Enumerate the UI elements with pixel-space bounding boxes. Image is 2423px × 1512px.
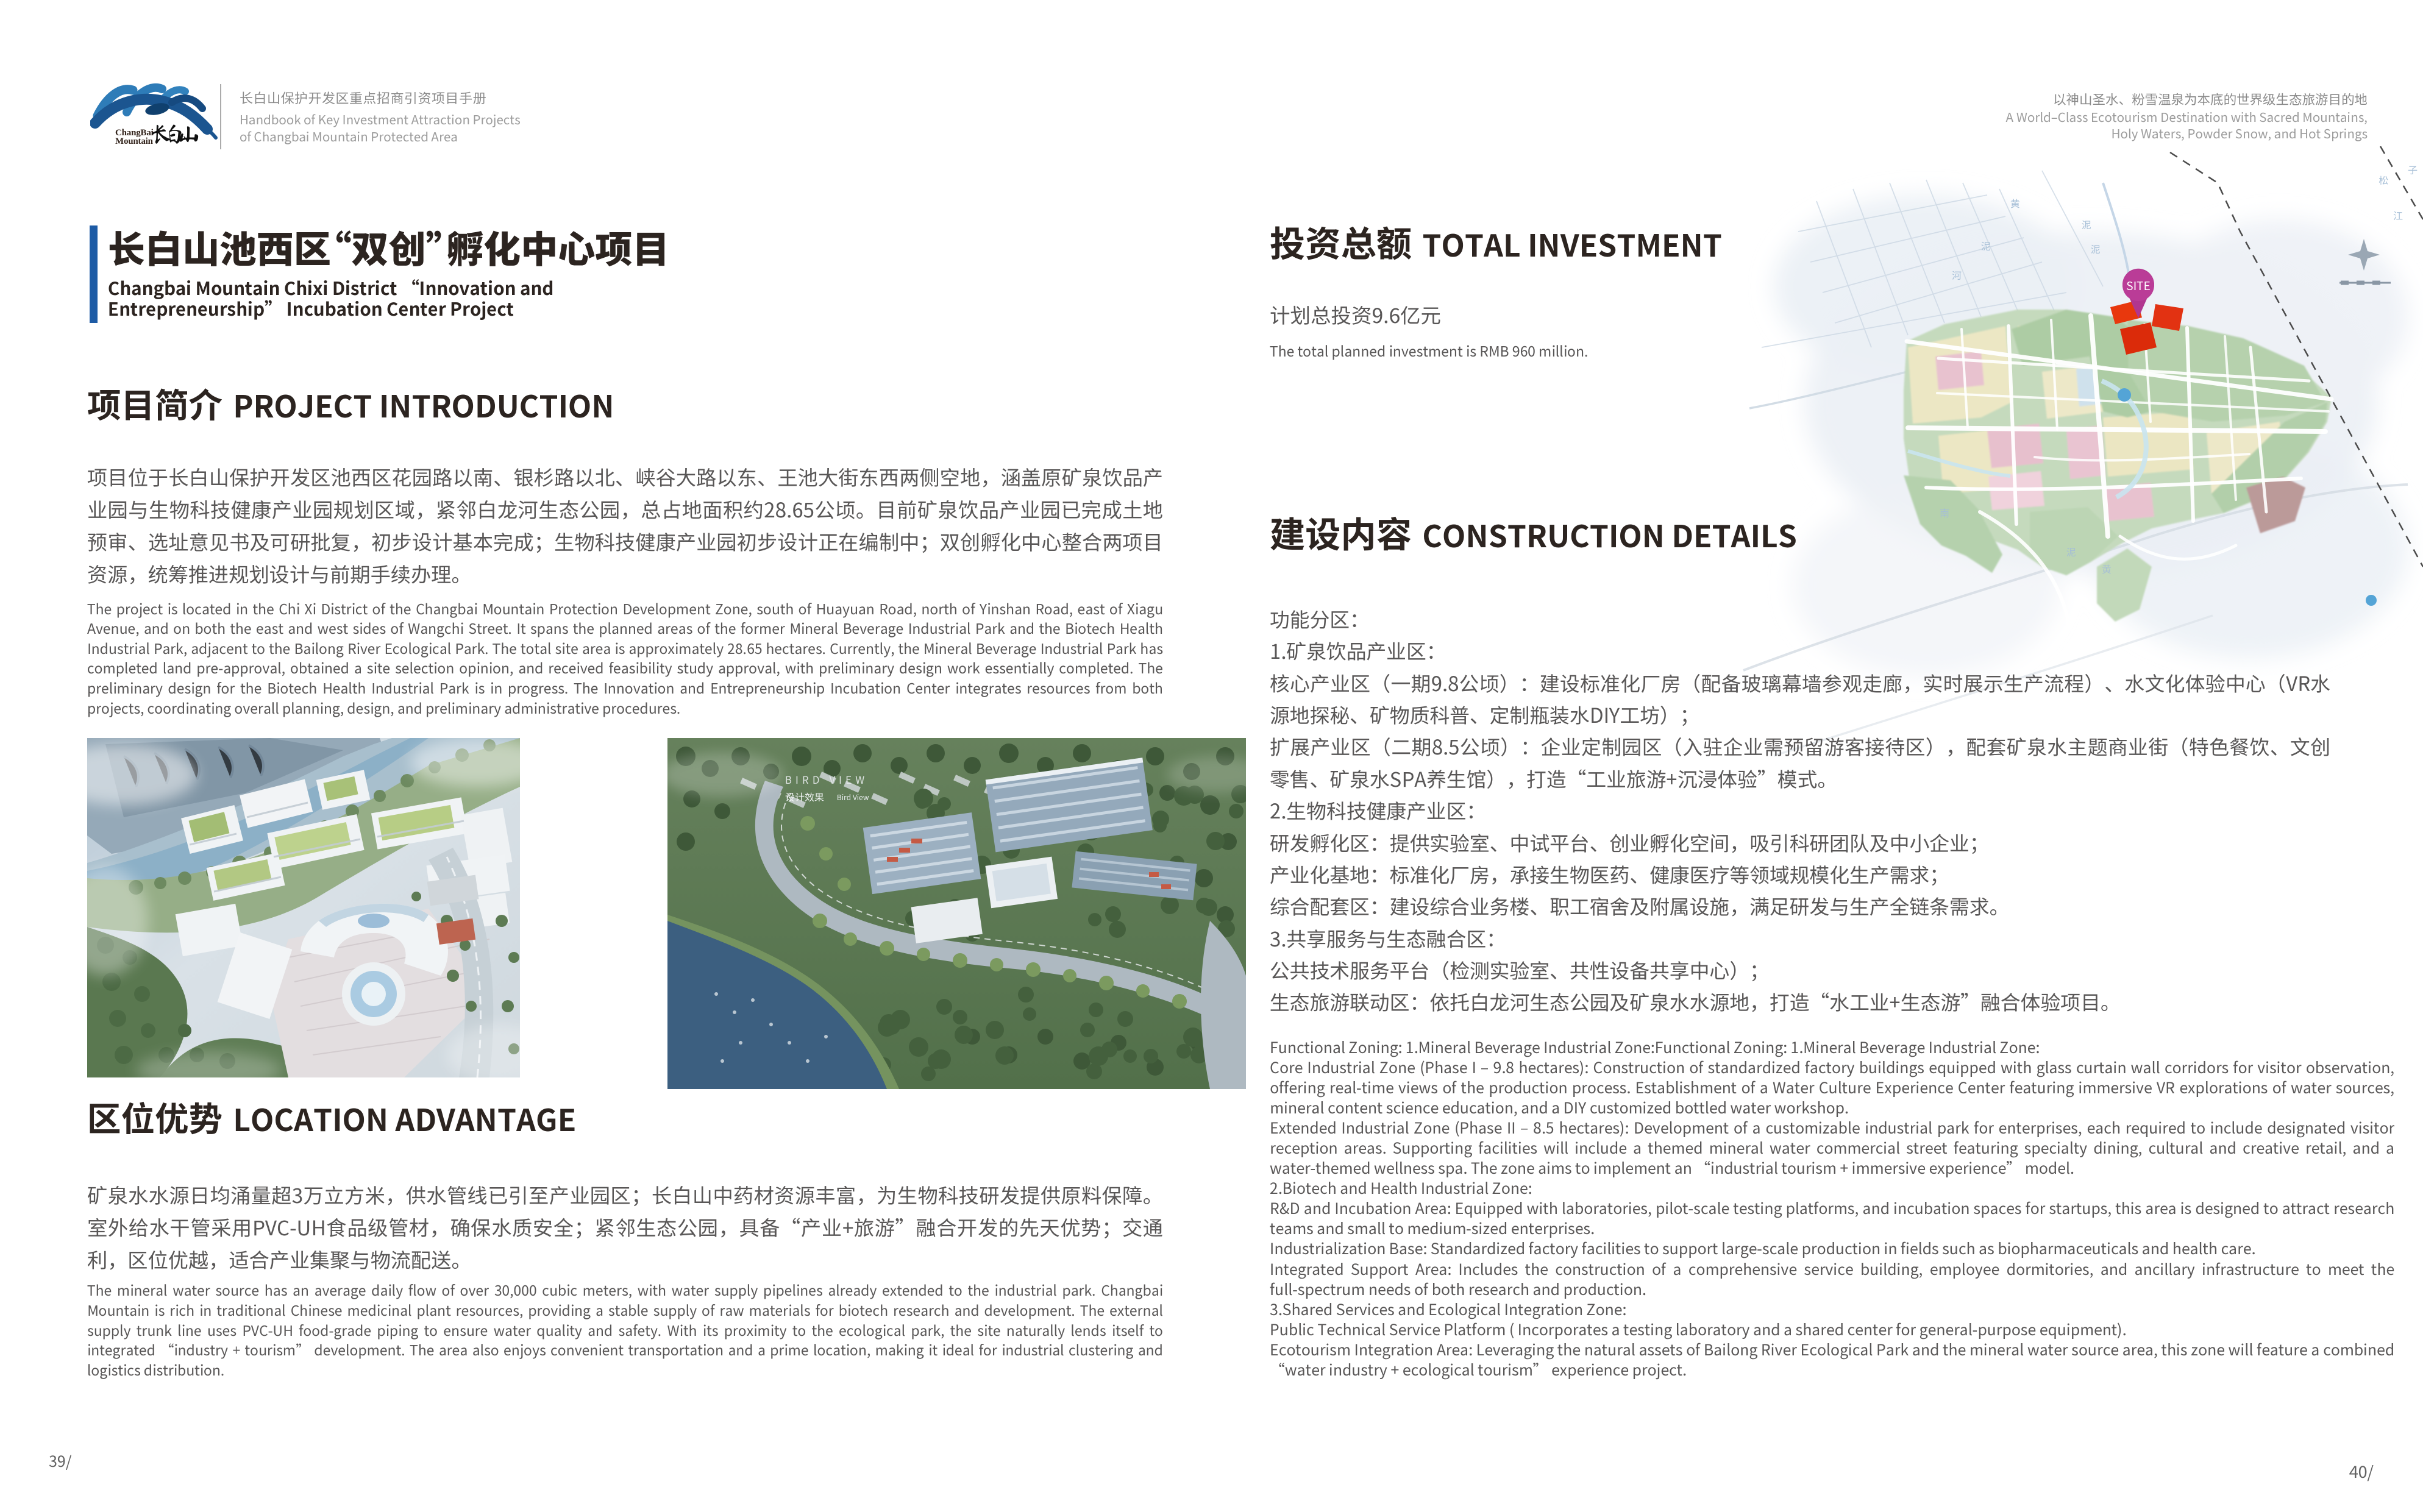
svg-text:SITE: SITE bbox=[2126, 277, 2150, 294]
svg-text:子: 子 bbox=[2408, 162, 2418, 177]
svg-text:泥: 泥 bbox=[2082, 217, 2091, 232]
svg-text:南: 南 bbox=[1940, 505, 1949, 520]
svg-text:泥: 泥 bbox=[2066, 544, 2076, 559]
svg-text:BIRD VIEW: BIRD VIEW bbox=[785, 772, 868, 787]
svg-text:江: 江 bbox=[2393, 208, 2403, 222]
svg-text:泥: 泥 bbox=[2091, 241, 2101, 256]
svg-text:Bird View: Bird View bbox=[837, 792, 869, 803]
svg-text:黄: 黄 bbox=[2010, 196, 2020, 210]
svg-text:黄: 黄 bbox=[2102, 561, 2112, 576]
svg-text:设计效果: 设计效果 bbox=[785, 789, 824, 804]
svg-text:泥: 泥 bbox=[1981, 238, 1991, 253]
svg-text:松: 松 bbox=[2379, 172, 2388, 187]
svg-text:河: 河 bbox=[1952, 268, 1962, 282]
